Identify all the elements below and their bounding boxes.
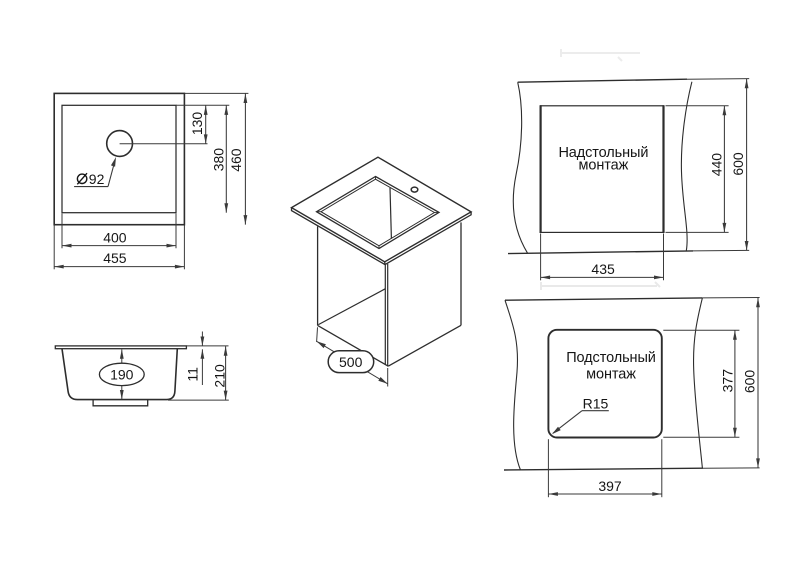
svg-text:440: 440 xyxy=(709,153,725,177)
svg-text:435: 435 xyxy=(591,261,615,277)
svg-text:R15: R15 xyxy=(583,395,609,411)
svg-text:монтаж: монтаж xyxy=(579,158,629,174)
svg-text:600: 600 xyxy=(742,370,758,394)
svg-text:92: 92 xyxy=(89,171,105,187)
svg-text:600: 600 xyxy=(730,152,746,176)
svg-text:400: 400 xyxy=(103,229,127,245)
svg-text:455: 455 xyxy=(103,250,127,266)
svg-text:500: 500 xyxy=(339,354,363,370)
svg-text:377: 377 xyxy=(720,369,736,393)
svg-text:130: 130 xyxy=(189,112,205,136)
svg-text:11: 11 xyxy=(185,367,201,382)
svg-text:460: 460 xyxy=(228,148,244,172)
svg-text:монтаж: монтаж xyxy=(586,367,636,383)
svg-text:Подстольный: Подстольный xyxy=(566,350,656,366)
svg-text:380: 380 xyxy=(211,148,227,172)
svg-text:210: 210 xyxy=(211,364,227,388)
svg-text:190: 190 xyxy=(110,366,134,382)
svg-text:397: 397 xyxy=(598,478,622,494)
